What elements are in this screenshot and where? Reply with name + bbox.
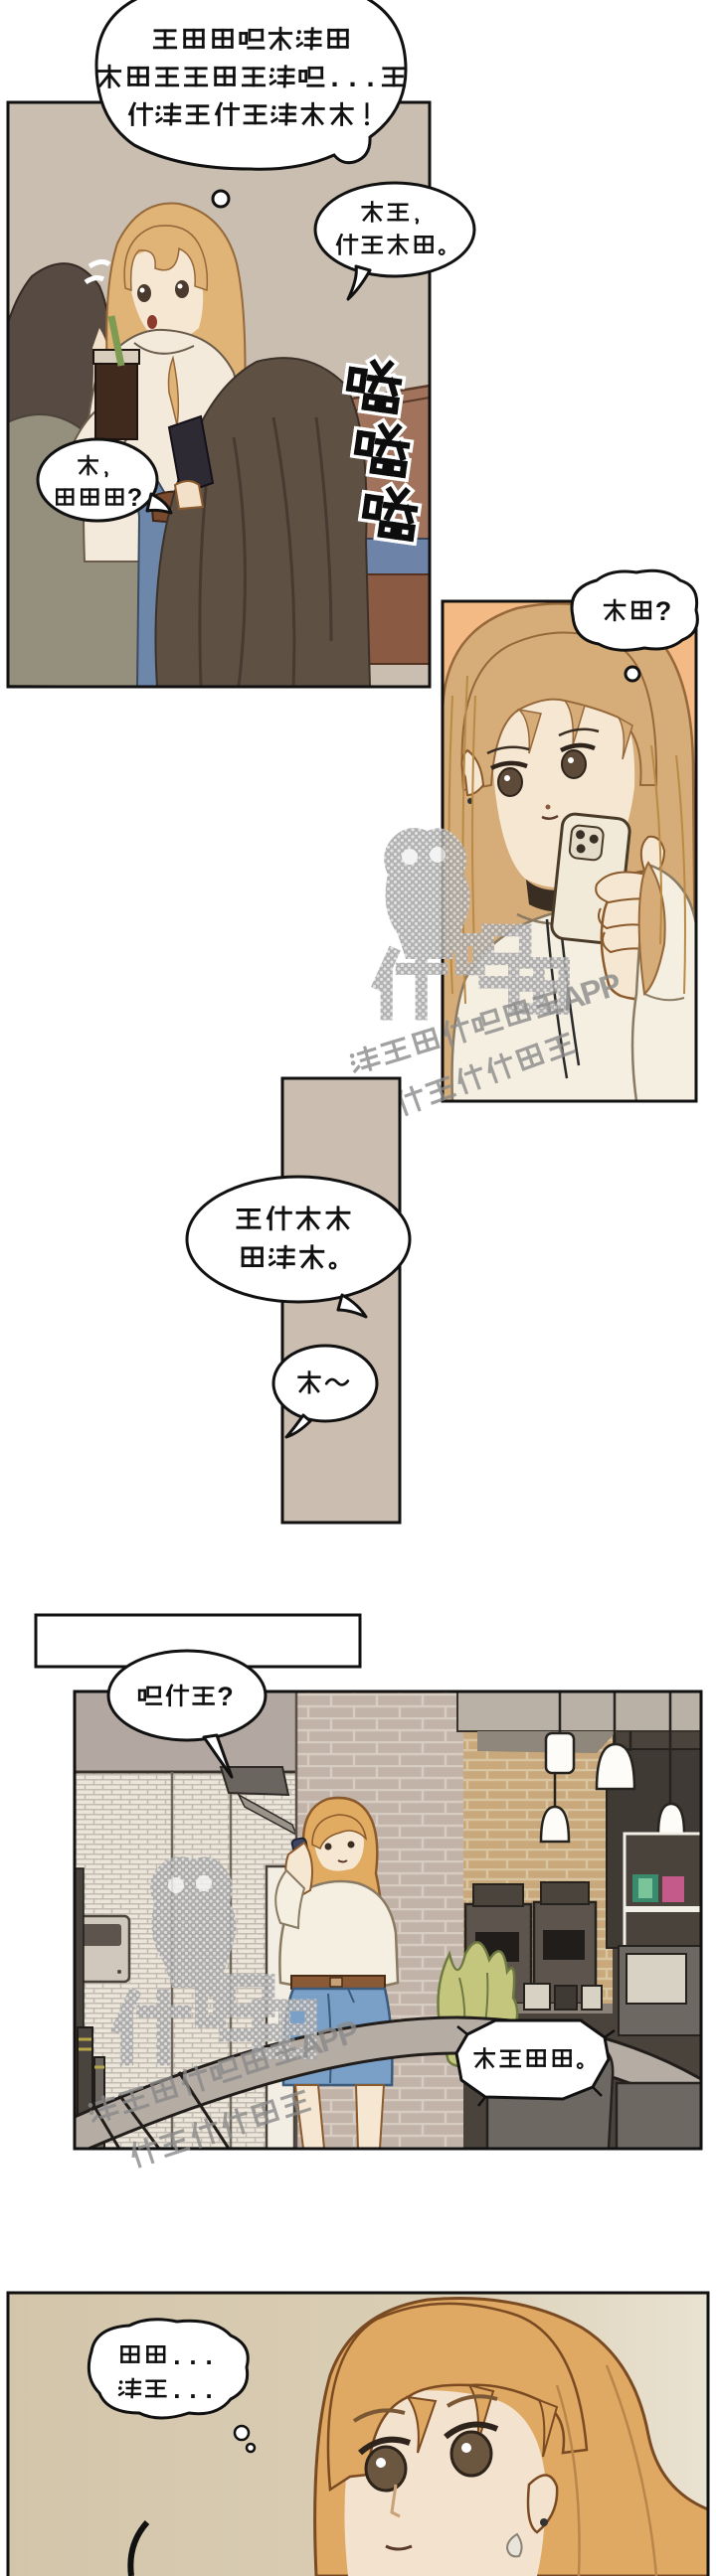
svg-text:.: . [173, 2340, 180, 2370]
svg-text:.: . [173, 2374, 180, 2404]
svg-text:?: ? [655, 596, 672, 626]
svg-text:.: . [366, 62, 374, 93]
svg-text:.: . [330, 62, 338, 93]
svg-text:.: . [189, 2374, 196, 2404]
svg-text:.: . [189, 2340, 196, 2370]
svg-text:.: . [348, 62, 356, 93]
svg-text:?: ? [127, 484, 142, 512]
svg-text:.: . [205, 2374, 212, 2404]
svg-text:.: . [205, 2340, 212, 2370]
svg-text:?: ? [217, 1682, 234, 1711]
